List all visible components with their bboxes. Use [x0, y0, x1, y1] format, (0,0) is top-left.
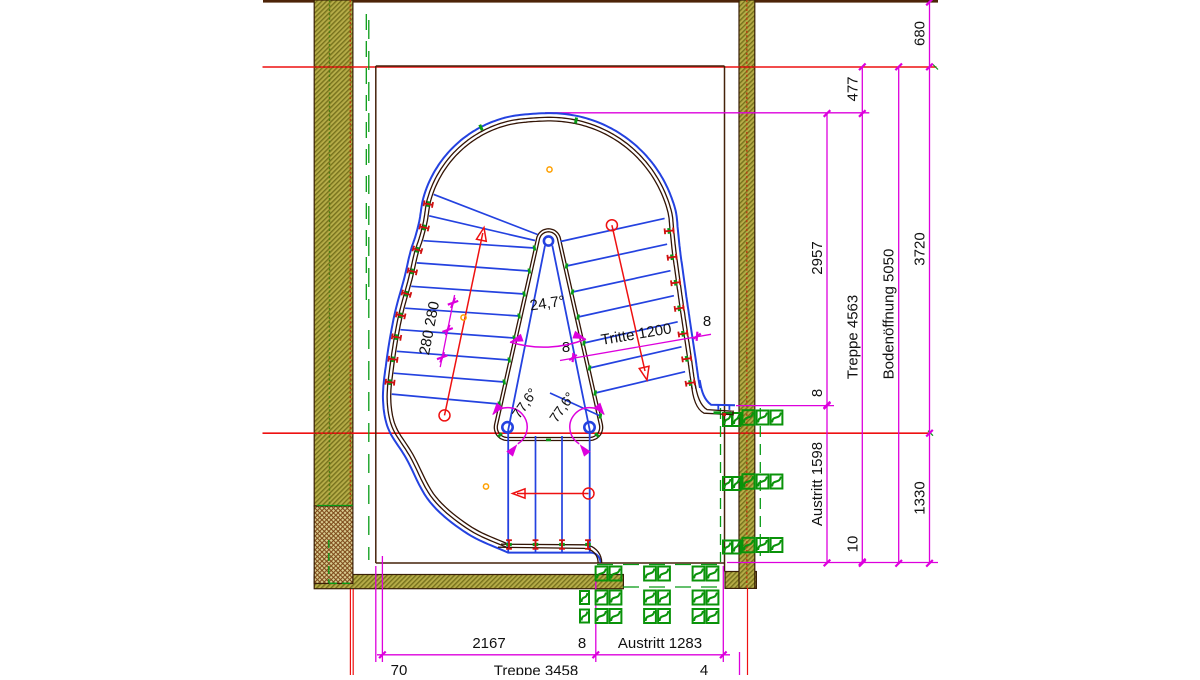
svg-text:Austritt 1598: Austritt 1598: [809, 442, 826, 526]
svg-text:10: 10: [844, 536, 861, 553]
svg-text:8: 8: [578, 635, 586, 652]
svg-text:Austritt 1283: Austritt 1283: [618, 635, 702, 652]
svg-text:8: 8: [703, 313, 711, 330]
svg-text:2957: 2957: [809, 241, 826, 274]
svg-text:70: 70: [391, 662, 408, 675]
svg-text:4: 4: [700, 662, 708, 675]
svg-text:3720: 3720: [912, 232, 929, 265]
svg-text:Treppe 3458: Treppe 3458: [494, 663, 579, 676]
svg-text:2167: 2167: [472, 635, 505, 652]
svg-text:1330: 1330: [912, 481, 929, 514]
svg-text:8: 8: [809, 389, 826, 397]
svg-text:8: 8: [562, 339, 570, 356]
svg-text:680: 680: [912, 21, 929, 46]
svg-text:Bodenöffnung 5050: Bodenöffnung 5050: [881, 249, 898, 380]
svg-text:477: 477: [844, 76, 861, 101]
svg-text:Treppe 4563: Treppe 4563: [844, 295, 861, 380]
